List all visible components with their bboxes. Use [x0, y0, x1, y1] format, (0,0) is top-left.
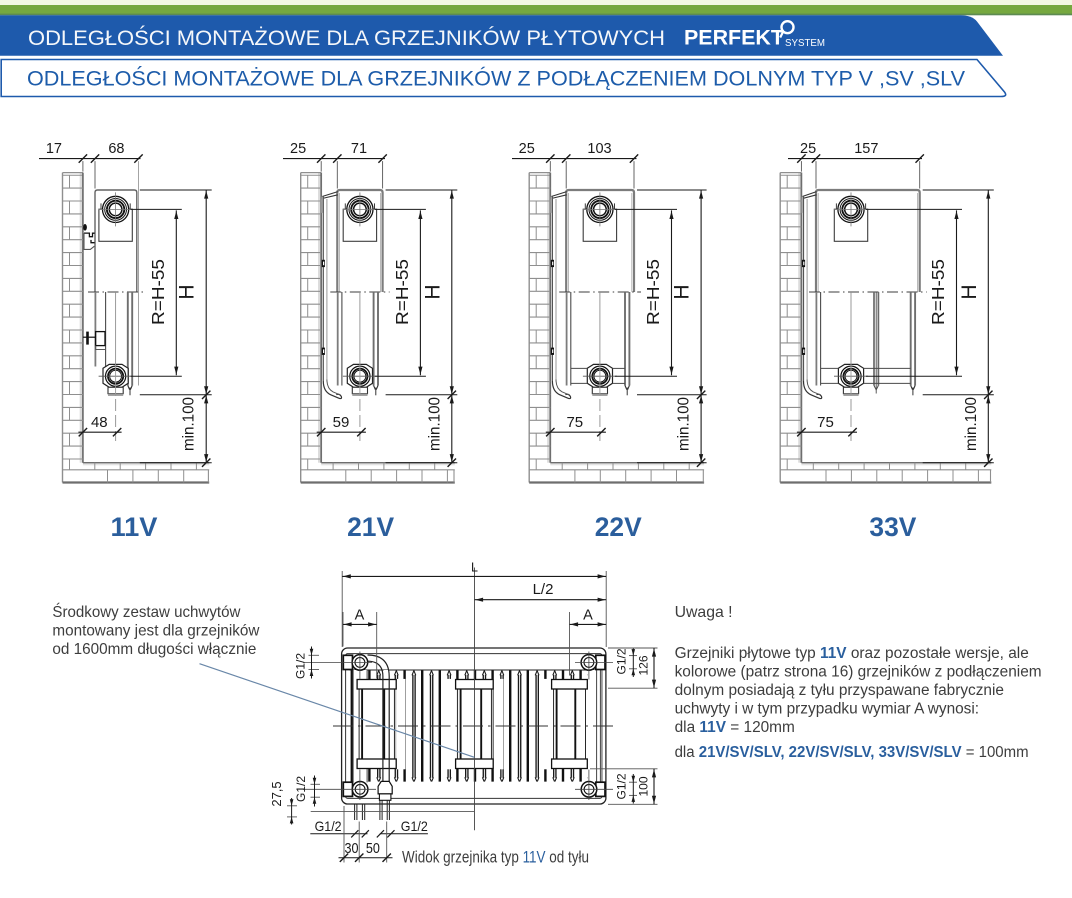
svg-text:H: H — [958, 284, 981, 299]
svg-text:od 1600mm długości włącznie: od 1600mm długości włącznie — [52, 641, 256, 658]
svg-text:75: 75 — [566, 414, 583, 431]
svg-text:27,5: 27,5 — [269, 781, 284, 806]
svg-text:dolnym posiadają z tyłu przysp: dolnym posiadają z tyłu przyspawane fabr… — [675, 682, 1004, 699]
svg-text:G1/2: G1/2 — [615, 773, 629, 799]
svg-text:Uwaga !: Uwaga ! — [675, 604, 733, 621]
svg-text:PERFEKT: PERFEKT — [684, 26, 784, 50]
svg-text:21V: 21V — [347, 512, 394, 542]
svg-text:Grzejniki płytowe typ 11V oraz: Grzejniki płytowe typ 11V oraz pozostałe… — [675, 645, 1029, 662]
svg-text:50: 50 — [366, 840, 380, 857]
svg-text:17: 17 — [46, 141, 62, 157]
svg-text:71: 71 — [351, 141, 367, 157]
svg-text:Widok grzejnika typ 11V od tył: Widok grzejnika typ 11V od tyłu — [402, 849, 589, 867]
svg-text:min.100: min.100 — [963, 397, 980, 451]
svg-text:R=H-55: R=H-55 — [392, 259, 412, 325]
svg-text:SYSTEM: SYSTEM — [785, 37, 825, 49]
svg-text:100: 100 — [637, 776, 651, 796]
svg-text:H: H — [176, 284, 199, 299]
svg-text:ODLEGŁOŚCI MONTAŻOWE DLA GRZEJ: ODLEGŁOŚCI MONTAŻOWE DLA GRZEJNIKÓW Z PO… — [27, 67, 965, 91]
svg-text:25: 25 — [519, 141, 535, 157]
svg-text:Środkowy zestaw uchwytów: Środkowy zestaw uchwytów — [52, 602, 240, 621]
svg-text:kolorowe (patrz strona 16) grz: kolorowe (patrz strona 16) grzejników z … — [675, 664, 1042, 681]
svg-text:G1/2: G1/2 — [315, 818, 342, 834]
svg-text:G1/2: G1/2 — [615, 648, 629, 674]
svg-text:A: A — [583, 607, 593, 623]
svg-text:A: A — [355, 607, 365, 623]
svg-text:R=H-55: R=H-55 — [148, 259, 168, 325]
svg-text:103: 103 — [587, 141, 611, 157]
svg-text:G1/2: G1/2 — [294, 776, 308, 802]
svg-text:G1/2: G1/2 — [401, 818, 428, 834]
svg-text:R=H-55: R=H-55 — [928, 259, 948, 325]
svg-text:48: 48 — [91, 414, 108, 431]
svg-text:L/2: L/2 — [533, 581, 554, 598]
svg-text:75: 75 — [817, 414, 834, 431]
svg-text:dla 11V = 120mm: dla 11V = 120mm — [675, 719, 795, 736]
svg-text:min.100: min.100 — [676, 397, 693, 451]
svg-text:68: 68 — [108, 141, 124, 157]
svg-text:montowany jest dla grzejników: montowany jest dla grzejników — [52, 623, 259, 640]
svg-text:30: 30 — [345, 840, 359, 857]
svg-text:min.100: min.100 — [181, 397, 198, 451]
svg-text:11V: 11V — [111, 512, 158, 542]
svg-text:L: L — [471, 561, 478, 575]
svg-text:59: 59 — [333, 414, 350, 431]
svg-text:H: H — [671, 284, 694, 299]
svg-text:157: 157 — [854, 141, 878, 157]
svg-text:min.100: min.100 — [426, 397, 443, 451]
svg-text:H: H — [421, 284, 444, 299]
svg-text:dla 21V/SV/SLV, 22V/SV/SLV, 33: dla 21V/SV/SLV, 22V/SV/SLV, 33V/SV/SLV =… — [675, 744, 1029, 761]
svg-text:126: 126 — [637, 655, 651, 675]
svg-text:25: 25 — [290, 141, 306, 157]
svg-text:22V: 22V — [595, 512, 642, 542]
svg-text:25: 25 — [800, 141, 816, 157]
svg-text:G1/2: G1/2 — [293, 653, 307, 679]
svg-text:33V: 33V — [869, 512, 916, 542]
svg-text:uchwyty i w tym przypadku wymi: uchwyty i w tym przypadku wymiar A wynos… — [675, 701, 979, 718]
svg-text:ODLEGŁOŚCI MONTAŻOWE DLA GRZ: ODLEGŁOŚCI MONTAŻOWE DLA GRZEJNIKÓW PŁYT… — [28, 25, 665, 50]
svg-text:R=H-55: R=H-55 — [643, 259, 663, 325]
